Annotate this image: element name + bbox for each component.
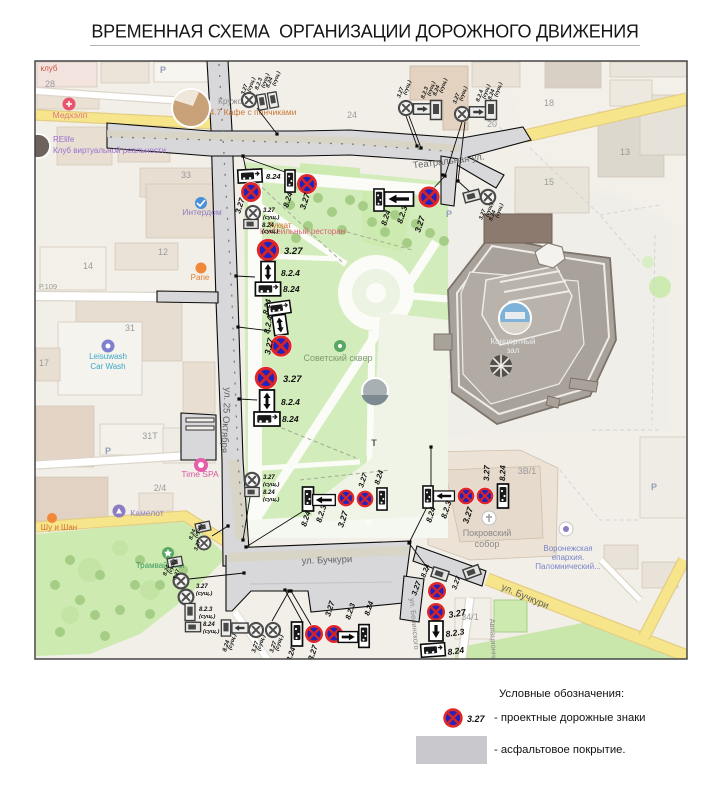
svg-text:Медхэлп: Медхэлп [53,110,88,120]
svg-text:31Т: 31Т [142,431,158,441]
svg-text:Car Wash: Car Wash [90,362,125,371]
svg-text:клуб: клуб [41,64,58,73]
svg-text:Шу и Шан: Шу и Шан [41,523,77,532]
svg-text:24: 24 [347,110,357,120]
svg-text:8.24: 8.24 [263,490,275,496]
svg-text:Концертный: Концертный [490,337,535,346]
svg-text:- проектные дорожные знаки: - проектные дорожные знаки [494,712,646,724]
svg-text:3В/1: 3В/1 [518,466,537,476]
svg-text:8.24: 8.24 [266,172,281,181]
svg-text:(сущ.): (сущ.) [203,629,220,635]
svg-text:Р: Р [651,482,657,492]
svg-text:RElife: RElife [53,135,75,144]
svg-text:31: 31 [125,323,135,333]
svg-text:4.7 Кафе с пончиками: 4.7 Кафе с пончиками [210,107,297,117]
svg-text:собор: собор [475,539,500,549]
svg-text:3.27: 3.27 [283,374,302,385]
svg-text:3.27: 3.27 [196,584,208,590]
svg-text:Интердом: Интердом [182,207,222,217]
svg-text:- асфальтовое покрытие.: - асфальтовое покрытие. [494,744,626,756]
svg-text:(сущ.): (сущ.) [262,229,279,235]
svg-text:Советский сквер: Советский сквер [303,353,372,363]
svg-text:2/4: 2/4 [154,483,167,493]
svg-text:Камелот: Камелот [130,508,164,518]
svg-text:12: 12 [158,247,168,257]
svg-text:ул. Бучкури: ул. Бучкури [301,554,352,567]
svg-text:3.27: 3.27 [482,465,492,481]
svg-text:Воронежская: Воронежская [543,544,592,553]
svg-text:Р: Р [105,446,111,456]
svg-text:Time SPA: Time SPA [181,469,219,479]
svg-text:епархия.: епархия. [552,553,585,562]
svg-text:8.24: 8.24 [498,465,508,481]
svg-text:Р.109: Р.109 [39,282,57,291]
svg-text:(сущ.): (сущ.) [196,591,213,597]
svg-text:15: 15 [544,177,554,187]
svg-text:8.2.3: 8.2.3 [199,607,213,613]
svg-text:Покровский: Покровский [463,528,512,538]
svg-text:Паломнический...: Паломнический... [535,562,601,571]
svg-text:8.24: 8.24 [282,414,299,424]
svg-text:8.24: 8.24 [283,284,300,294]
svg-text:Leisuwash: Leisuwash [89,352,127,361]
svg-text:3.27: 3.27 [263,208,275,214]
svg-text:зал: зал [507,346,520,355]
svg-text:8.2.4: 8.2.4 [281,268,300,278]
svg-text:14: 14 [83,261,93,271]
svg-text:Т: Т [371,438,377,448]
svg-text:20: 20 [487,119,497,129]
svg-text:(сущ.): (сущ.) [263,482,280,488]
svg-text:Р: Р [446,209,452,219]
svg-text:(сущ.): (сущ.) [263,215,280,221]
svg-text:28: 28 [45,79,55,89]
svg-text:18: 18 [544,98,554,108]
svg-text:8.2.4: 8.2.4 [281,397,300,407]
svg-text:Pane: Pane [191,273,210,282]
svg-text:3.27: 3.27 [284,246,303,257]
svg-text:17: 17 [39,358,49,368]
svg-text:33: 33 [181,170,191,180]
svg-text:(сущ.): (сущ.) [199,614,216,620]
svg-text:Условные обозначения:: Условные обозначения: [499,688,624,700]
svg-text:Клуб виртуальной реальности: Клуб виртуальной реальности [53,146,166,155]
svg-text:13: 13 [620,147,630,157]
svg-text:8.24: 8.24 [203,622,215,628]
svg-text:(сущ.): (сущ.) [263,497,280,503]
svg-text:3.27: 3.27 [263,475,275,481]
svg-text:ВРЕМЕННАЯ СХЕМА ОРГАНИЗАЦИИ Д: ВРЕМЕННАЯ СХЕМА ОРГАНИЗАЦИИ ДОРОЖНОГО ДВ… [91,22,638,42]
svg-text:Р: Р [160,65,166,75]
svg-text:3.27: 3.27 [467,714,486,724]
